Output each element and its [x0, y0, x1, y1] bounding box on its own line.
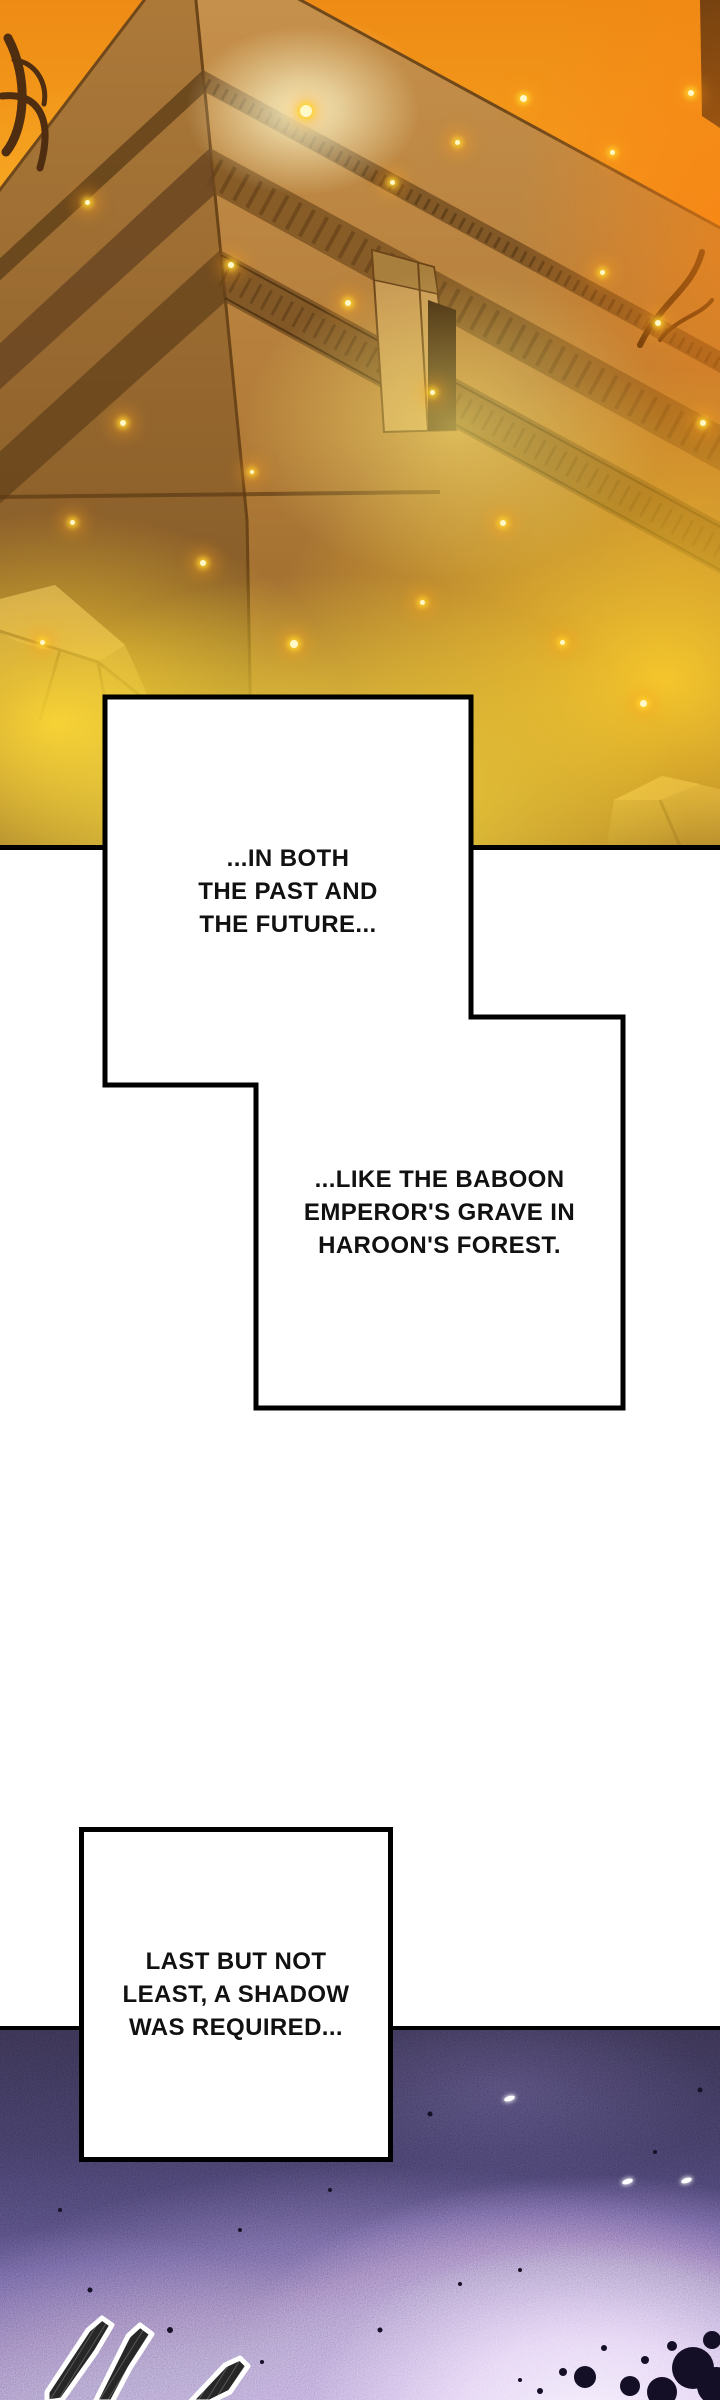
caption-box-3: LAST BUT NOT LEAST, A SHADOW WAS REQUIRE…	[79, 1827, 393, 2162]
caption-line: EMPEROR'S GRAVE IN	[304, 1196, 575, 1229]
webtoon-page: ...IN BOTH THE PAST AND THE FUTURE... ..…	[0, 0, 720, 2400]
caption-line: LAST BUT NOT	[146, 1945, 327, 1978]
caption-line: LEAST, A SHADOW	[123, 1978, 350, 2011]
caption-line: THE FUTURE...	[199, 908, 376, 941]
ink-blobs	[518, 2331, 720, 2400]
shard-shapes	[47, 2318, 248, 2400]
caption-line: THE PAST AND	[198, 875, 377, 908]
caption-line: HAROON'S FOREST.	[318, 1229, 561, 1262]
caption-line: WAS REQUIRED...	[129, 2011, 343, 2044]
caption-box-2: ...LIKE THE BABOON EMPEROR'S GRAVE IN HA…	[256, 1017, 623, 1408]
caption-line: ...LIKE THE BABOON	[315, 1163, 565, 1196]
caption-line: ...IN BOTH	[227, 842, 350, 875]
